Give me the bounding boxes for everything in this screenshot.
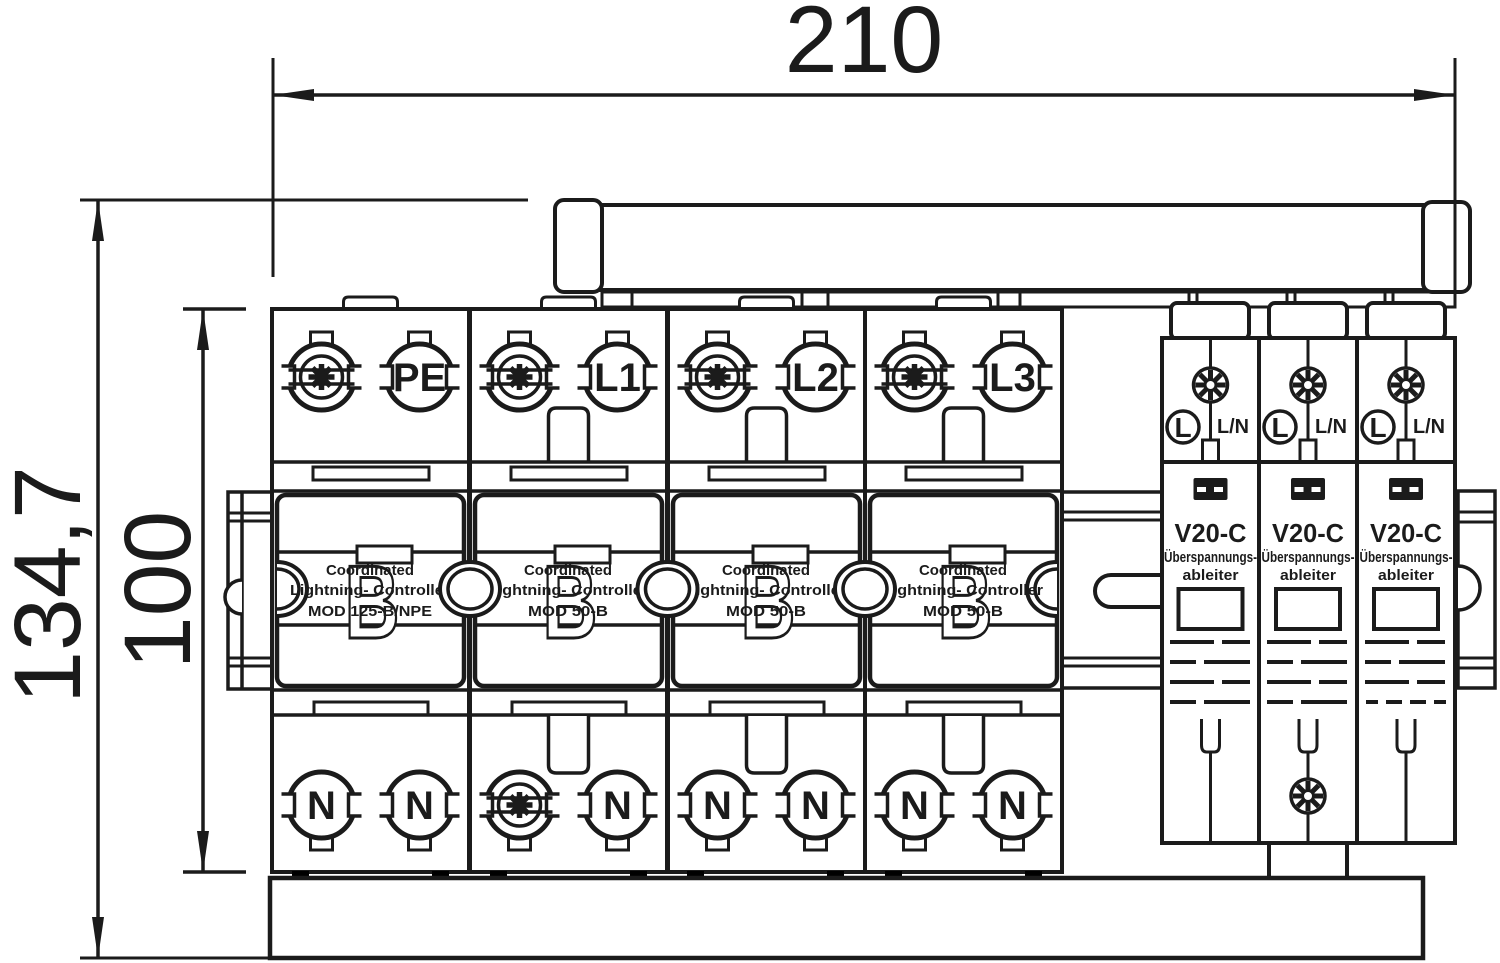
- terminal-label: N: [307, 784, 336, 828]
- terminal-label: L/N: [1217, 416, 1249, 438]
- spd-top-connector: [1367, 303, 1445, 339]
- terminal-label: N: [603, 784, 632, 828]
- module-desc-line2: Lightning- Controller: [686, 582, 846, 599]
- busbar-end-block-left: [555, 200, 602, 292]
- module-desc-line1: Coordinated: [326, 562, 414, 579]
- terminal-clamp: [1203, 440, 1219, 462]
- module-plug-top: [549, 408, 589, 462]
- status-indicator-mark: [1393, 487, 1402, 492]
- status-indicator-mark: [1410, 487, 1419, 492]
- module-desc-line1: Coordinated: [919, 562, 1007, 579]
- dimension-value: 100: [105, 511, 211, 670]
- spd-desc-line2: ableiter: [1183, 568, 1239, 584]
- module-plug-top: [747, 408, 787, 462]
- module-desc-line1: Coordinated: [722, 562, 810, 579]
- terminal-label: N: [998, 784, 1027, 828]
- terminal-label: L: [1174, 412, 1191, 443]
- busbar-end-block-right: [1423, 202, 1470, 292]
- status-indicator-mark: [1214, 487, 1223, 492]
- surge-protection-drawing: B Coordinated Lightning- Controller MOD …: [0, 0, 1500, 963]
- spd-bottom-clamp: [1202, 719, 1220, 752]
- module-plug-top: [944, 408, 984, 462]
- spd-module-1: L L/N V20-C Überspannungs- ableiter: [1162, 303, 1259, 843]
- spd-foot: [1269, 843, 1347, 878]
- arrowhead-left-icon: [273, 89, 314, 101]
- dimension-value: 210: [785, 0, 944, 93]
- module-desc-line1: Coordinated: [524, 562, 612, 579]
- dimension-width-210: 210: [273, 0, 1455, 303]
- spd-desc-line1: Überspannungs-: [1262, 549, 1355, 566]
- module-desc-line3: MOD 50-B: [726, 603, 806, 620]
- spd-type-label: V20-C: [1370, 518, 1442, 548]
- spd-desc-line1: Überspannungs-: [1360, 549, 1453, 566]
- terminal-label: L3: [989, 356, 1036, 400]
- busbar: [555, 200, 1470, 307]
- terminal-label: L: [1369, 412, 1386, 443]
- arrowhead-up-icon: [197, 309, 209, 350]
- spd-desc-line2: ableiter: [1280, 568, 1336, 584]
- arrowhead-up-icon: [92, 200, 104, 241]
- arrowhead-down-icon: [197, 831, 209, 872]
- terminal-label: L/N: [1315, 416, 1347, 438]
- terminal-label: N: [405, 784, 434, 828]
- screw-gear-icon: [1389, 368, 1423, 402]
- arrowhead-down-icon: [92, 917, 104, 958]
- terminal-clamp: [1300, 440, 1316, 462]
- module-desc-line3: MOD 50-B: [923, 603, 1003, 620]
- module-desc-line3: MOD 50-B: [528, 603, 608, 620]
- din-rail-right-segment: [1458, 491, 1495, 688]
- terminal-label: L: [1271, 412, 1288, 443]
- spd-desc-line2: ableiter: [1378, 568, 1434, 584]
- screw-gear-icon: [1194, 368, 1228, 402]
- rail-slot-end-left: [225, 580, 242, 614]
- spd-module-3: L L/N V20-C Überspannungs- ableiter: [1357, 303, 1455, 843]
- spd-bottom-clamp: [1397, 719, 1415, 752]
- terminal-clamp: [1398, 440, 1414, 462]
- rail-slot-end-right: [1458, 566, 1480, 610]
- screw-gear-icon: [1291, 368, 1325, 402]
- spd-type-label: V20-C: [1175, 518, 1247, 548]
- dimension-value: 134,7: [0, 466, 101, 704]
- module-desc-line3: MOD 125-B/NPE: [308, 603, 432, 620]
- module-plug-bottom: [747, 716, 787, 773]
- module-plug-bottom: [549, 716, 589, 773]
- status-indicator-mark: [1295, 487, 1304, 492]
- status-indicator-mark: [1312, 487, 1321, 492]
- terminal-label: L2: [792, 356, 839, 400]
- spd-top-connector: [1269, 303, 1347, 339]
- status-indicator-mark: [1197, 487, 1206, 492]
- module-desc-line2: Lightning- Controller: [488, 582, 648, 599]
- module-plug-bottom: [944, 716, 984, 773]
- base-plate: [270, 878, 1423, 958]
- spd-desc-line1: Überspannungs-: [1164, 549, 1257, 566]
- terminal-label: N: [801, 784, 830, 828]
- din-rail-left-stub: [225, 492, 272, 689]
- din-rail-middle-segment: [1063, 492, 1175, 688]
- terminal-label: PE: [393, 356, 446, 400]
- spd-top-connector: [1171, 303, 1249, 339]
- module-desc-line2: Lightning- Controller: [290, 582, 450, 599]
- module-desc-line2: Lightning- Controller: [883, 582, 1043, 599]
- spd-type-label: V20-C: [1272, 518, 1344, 548]
- busbar-body: [600, 205, 1425, 290]
- terminal-label: L/N: [1413, 416, 1445, 438]
- technical-drawing-canvas: B Coordinated Lightning- Controller MOD …: [0, 0, 1500, 963]
- arrowhead-right-icon: [1414, 89, 1455, 101]
- terminal-label: N: [900, 784, 929, 828]
- screw-gear-icon: [1291, 779, 1325, 813]
- terminal-label: L1: [594, 356, 641, 400]
- spd-bottom-clamp: [1299, 719, 1317, 752]
- terminal-label: N: [703, 784, 732, 828]
- spd-module-2: L L/N V20-C Überspannungs- ableiter: [1259, 303, 1357, 843]
